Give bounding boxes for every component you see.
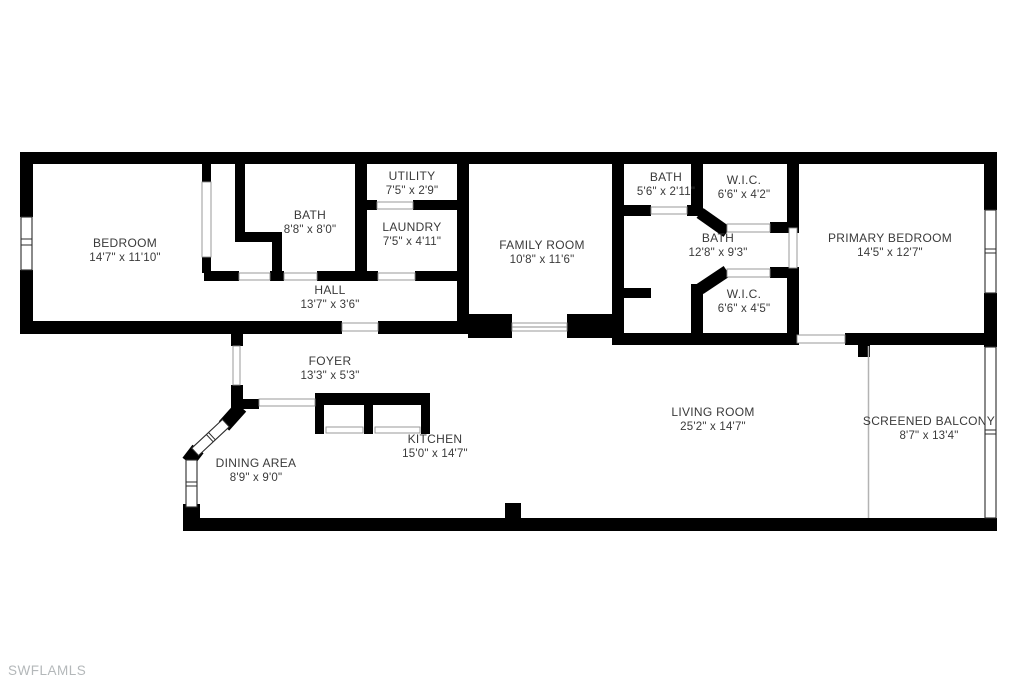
door-opening	[239, 273, 270, 280]
wall-segment	[317, 271, 378, 281]
door-opening	[284, 273, 317, 280]
room-dims-screened-balcony: 8'7" x 13'4"	[899, 430, 958, 442]
door-opening	[378, 273, 415, 280]
door-opening	[202, 182, 211, 257]
room-label-bedroom: BEDROOM	[93, 236, 157, 250]
room-label-utility: UTILITY	[389, 169, 436, 183]
room-dims-foyer: 13'3" x 5'3"	[300, 370, 359, 382]
wall-segment	[204, 271, 239, 281]
wall-segment	[186, 518, 997, 531]
wall-segment	[231, 334, 243, 346]
room-dims-wic-lower: 6'6" x 4'5"	[718, 303, 770, 315]
wall-segment	[202, 164, 211, 182]
wall-segment	[272, 242, 282, 273]
window-symbol	[985, 210, 996, 293]
screen-window-symbol	[985, 347, 996, 518]
room-label-bath: BATH	[294, 208, 326, 222]
room-label-bath-primary: BATH	[702, 231, 734, 245]
column	[505, 503, 521, 518]
wall-segment	[20, 321, 342, 334]
room-dims-primary-bedroom: 14'5" x 12'7"	[857, 247, 923, 259]
room-dims-living-room: 25'2" x 14'7"	[680, 421, 746, 433]
wall-segment	[845, 333, 990, 345]
wall-segment-diagonal	[700, 213, 727, 232]
room-label-foyer: FOYER	[309, 354, 352, 368]
wall-segment	[624, 205, 651, 216]
room-dims-bath: 8'8" x 8'0"	[284, 224, 336, 236]
room-label-screened-balcony: SCREENED BALCONY	[863, 414, 995, 428]
wall-segment	[270, 271, 284, 281]
wall-segment	[457, 164, 469, 321]
room-dims-family-room: 10'8" x 11'6"	[510, 254, 575, 266]
room-label-primary-bedroom: PRIMARY BEDROOM	[828, 231, 952, 245]
wall-segment-diagonal	[700, 271, 727, 289]
room-dims-laundry: 7'5" x 4'11"	[383, 236, 441, 248]
wall-segment	[364, 405, 373, 434]
room-label-living-room: LIVING ROOM	[671, 405, 754, 419]
wall-segment	[315, 405, 324, 434]
door-opening	[727, 269, 770, 277]
walls	[20, 152, 997, 531]
wall-segment	[612, 333, 797, 345]
door-opening	[797, 335, 845, 343]
room-dims-dining-area: 8'9" x 9'0"	[230, 472, 282, 484]
room-label-dining-area: DINING AREA	[216, 456, 297, 470]
door-jamb	[468, 314, 512, 338]
door-opening	[259, 399, 315, 406]
wall-segment	[787, 164, 799, 228]
room-dims-hall: 13'7" x 3'6"	[300, 299, 359, 311]
room-label-laundry: LAUNDRY	[382, 220, 441, 234]
floor-plan-page: BEDROOM 14'7" x 11'10" BATH 8'8" x 8'0" …	[0, 0, 1024, 682]
floor-plan: BEDROOM 14'7" x 11'10" BATH 8'8" x 8'0" …	[0, 0, 1024, 682]
room-dims-bedroom: 14'7" x 11'10"	[89, 252, 160, 264]
wall-segment	[235, 164, 245, 232]
door-opening	[342, 323, 378, 331]
room-label-family-room: FAMILY ROOM	[499, 238, 585, 252]
window-symbol	[21, 217, 32, 270]
wall-segment	[421, 405, 430, 434]
bay-window-symbol	[192, 420, 230, 456]
wall-segment	[202, 257, 211, 273]
wall-segment	[28, 152, 997, 164]
door-opening	[789, 228, 797, 268]
door-opening	[651, 207, 687, 214]
room-dims-kitchen: 15'0" x 14'7"	[402, 448, 468, 460]
wall-segment	[183, 504, 200, 531]
windows	[21, 210, 996, 518]
room-dims-wic-upper: 6'6" x 4'2"	[718, 189, 770, 201]
room-label-wic-lower: W.I.C.	[727, 287, 761, 301]
room-label-hall: HALL	[314, 283, 345, 297]
window-symbol	[186, 460, 197, 507]
room-label-bath-small: BATH	[650, 170, 682, 184]
counter-opening	[326, 427, 363, 433]
watermark-text: SWFLAMLS	[8, 663, 86, 678]
wall-segment	[315, 393, 430, 405]
door-opening	[377, 202, 413, 209]
room-dims-bath-small: 5'6" x 2'11"	[637, 186, 695, 198]
wall-segment	[612, 164, 624, 321]
wall-segment	[355, 200, 377, 210]
door-opening	[233, 346, 240, 385]
wall-segment	[984, 152, 997, 210]
wall-segment	[20, 152, 33, 217]
room-dims-utility: 7'5" x 2'9"	[386, 185, 438, 197]
wall-segment	[235, 232, 282, 242]
wall-segment	[624, 288, 651, 298]
wall-segment	[355, 164, 367, 271]
room-label-wic-upper: W.I.C.	[727, 173, 761, 187]
room-dims-bath-primary: 12'8" x 9'3"	[688, 247, 747, 259]
room-label-kitchen: KITCHEN	[408, 432, 463, 446]
